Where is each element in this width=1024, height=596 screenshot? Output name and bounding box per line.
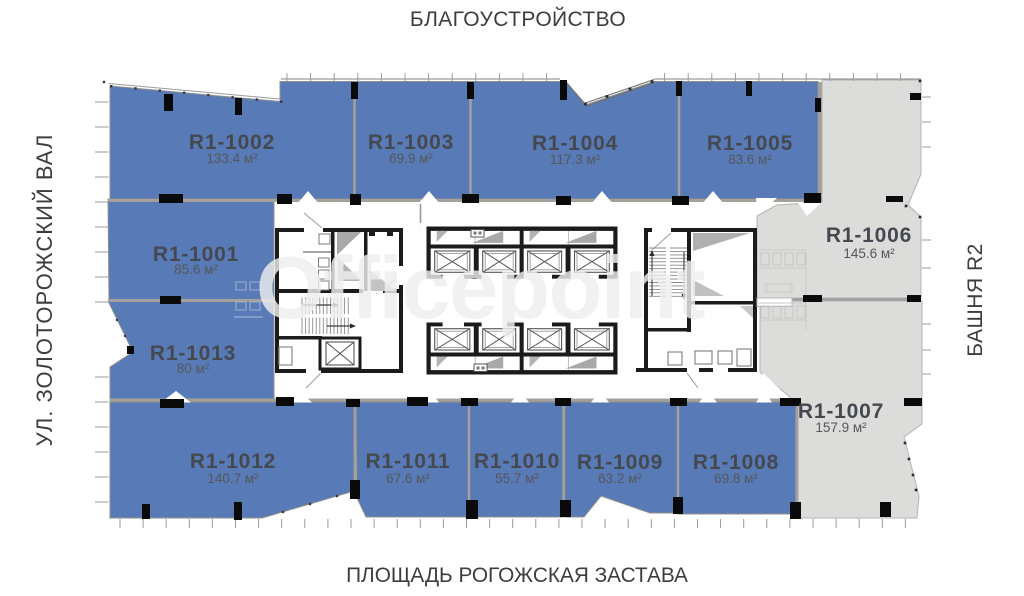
svg-text:БАШНЯ R2: БАШНЯ R2 xyxy=(964,243,987,357)
svg-text:145.6 м²: 145.6 м² xyxy=(843,246,895,261)
svg-text:УЛ. ЗОЛОТОРОЖСКИЙ ВАЛ: УЛ. ЗОЛОТОРОЖСКИЙ ВАЛ xyxy=(32,134,57,447)
svg-text:140.7 м²: 140.7 м² xyxy=(207,471,259,486)
svg-text:85.6 м²: 85.6 м² xyxy=(174,262,218,277)
svg-text:БЛАГОУСТРОЙСТВО: БЛАГОУСТРОЙСТВО xyxy=(410,7,626,31)
svg-text:117.3 м²: 117.3 м² xyxy=(550,152,601,167)
svg-text:ПЛОЩАДЬ РОГОЖСКАЯ ЗАСТАВА: ПЛОЩАДЬ РОГОЖСКАЯ ЗАСТАВА xyxy=(346,564,688,587)
svg-text:Officepoint: Officepoint xyxy=(256,238,705,337)
svg-text:133.4 м²: 133.4 м² xyxy=(206,151,258,166)
svg-text:80 м²: 80 м² xyxy=(177,361,210,376)
svg-text:R1-1010: R1-1010 xyxy=(474,450,560,473)
svg-text:69.8 м²: 69.8 м² xyxy=(714,471,758,486)
svg-text:67.6 м²: 67.6 м² xyxy=(386,471,430,486)
svg-text:63.2 м²: 63.2 м² xyxy=(598,471,642,486)
svg-text:R1-1011: R1-1011 xyxy=(366,450,451,473)
svg-text:R1-1012: R1-1012 xyxy=(190,450,276,473)
svg-text:R1-1006: R1-1006 xyxy=(826,224,912,247)
svg-text:157.9 м²: 157.9 м² xyxy=(815,420,867,435)
svg-text:83.6 м²: 83.6 м² xyxy=(728,152,772,167)
svg-text:69.9 м²: 69.9 м² xyxy=(389,151,433,166)
svg-text:55.7 м²: 55.7 м² xyxy=(495,471,539,486)
